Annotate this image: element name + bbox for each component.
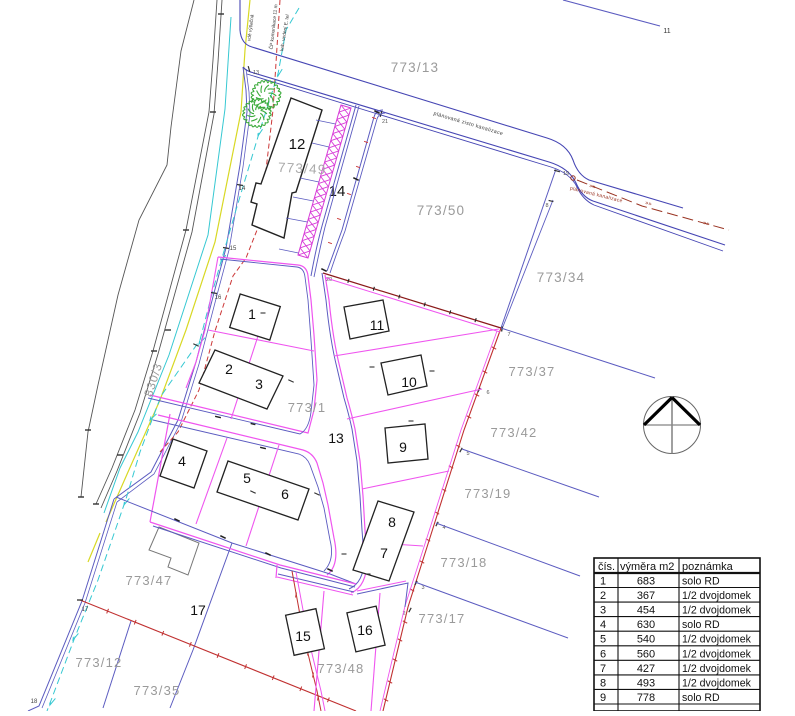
svg-text:1/2 dvojdomek: 1/2 dvojdomek [682, 590, 752, 602]
svg-text:solo RD: solo RD [682, 576, 720, 588]
svg-text:7: 7 [380, 545, 388, 561]
svg-text:773/37: 773/37 [509, 364, 556, 379]
svg-text:1/2 dvojdomek: 1/2 dvojdomek [682, 634, 752, 646]
svg-text:454: 454 [637, 605, 655, 617]
svg-text:2: 2 [600, 590, 606, 602]
svg-text:683: 683 [637, 576, 655, 588]
svg-text:773/1: 773/1 [288, 400, 327, 415]
svg-text:7: 7 [507, 332, 510, 338]
svg-text:poznámka: poznámka [682, 561, 734, 573]
svg-text:773/12: 773/12 [76, 655, 123, 670]
svg-text:13: 13 [253, 70, 259, 76]
svg-text:773/34: 773/34 [537, 270, 586, 285]
svg-text:16: 16 [215, 295, 222, 301]
svg-text:2: 2 [225, 361, 233, 377]
svg-text:1: 1 [248, 306, 256, 322]
svg-text:1/2 dvojdomek: 1/2 dvojdomek [682, 648, 752, 660]
svg-text:11: 11 [663, 28, 670, 35]
svg-text:8: 8 [388, 514, 396, 530]
svg-text:773/18: 773/18 [441, 555, 488, 570]
svg-text:427: 427 [637, 663, 655, 675]
svg-text:773/48: 773/48 [318, 661, 365, 676]
svg-text:5: 5 [600, 634, 606, 646]
svg-text:1/2 dvojdomek: 1/2 dvojdomek [682, 663, 752, 675]
svg-text:630: 630 [637, 619, 655, 631]
svg-text:3: 3 [255, 376, 263, 392]
svg-text:367: 367 [637, 590, 655, 602]
svg-text:17: 17 [190, 602, 206, 618]
svg-text:18: 18 [31, 699, 38, 705]
svg-text:6: 6 [600, 648, 606, 660]
svg-text:9: 9 [600, 692, 606, 704]
svg-text:773/49: 773/49 [278, 160, 327, 178]
svg-text:11: 11 [370, 317, 385, 333]
svg-text:6: 6 [281, 486, 289, 502]
svg-text:15: 15 [295, 628, 311, 644]
svg-text:15: 15 [230, 246, 237, 252]
svg-text:8: 8 [545, 203, 548, 209]
svg-text:560: 560 [637, 648, 655, 660]
svg-text:1/2 dvojdomek: 1/2 dvojdomek [682, 677, 752, 689]
svg-text:773/19: 773/19 [465, 486, 512, 501]
svg-text:3: 3 [421, 585, 424, 591]
svg-text:12: 12 [289, 136, 306, 153]
svg-text:14: 14 [239, 186, 246, 192]
svg-text:773/42: 773/42 [491, 425, 538, 440]
svg-text:773/17: 773/17 [419, 611, 466, 626]
svg-text:7: 7 [600, 663, 606, 675]
svg-text:čís.: čís. [598, 561, 615, 573]
svg-text:6: 6 [486, 390, 489, 396]
svg-text:3: 3 [600, 605, 606, 617]
svg-text:773/35: 773/35 [134, 683, 181, 698]
svg-text:21: 21 [382, 119, 388, 125]
svg-text:1: 1 [600, 576, 606, 588]
svg-text:773/50: 773/50 [417, 203, 466, 218]
svg-text:17: 17 [82, 607, 89, 613]
svg-text:540: 540 [637, 634, 655, 646]
svg-text:19: 19 [563, 171, 569, 177]
svg-text:výměra m2: výměra m2 [620, 561, 674, 573]
svg-text:10: 10 [401, 374, 417, 390]
svg-text:9: 9 [399, 439, 407, 455]
svg-text:16: 16 [357, 622, 373, 638]
svg-text:493: 493 [637, 677, 655, 689]
svg-text:773/13: 773/13 [391, 60, 440, 75]
svg-text:8: 8 [600, 677, 606, 689]
svg-text:solo RD: solo RD [682, 619, 720, 631]
svg-text:4: 4 [178, 453, 186, 469]
svg-text:4: 4 [600, 619, 606, 631]
svg-text:5: 5 [243, 470, 251, 486]
svg-text:solo RD: solo RD [682, 692, 720, 704]
svg-text:773/47: 773/47 [126, 573, 173, 588]
svg-text:778: 778 [637, 692, 655, 704]
svg-text:13: 13 [328, 430, 344, 446]
svg-text:1/2 dvojdomek: 1/2 dvojdomek [682, 605, 752, 617]
